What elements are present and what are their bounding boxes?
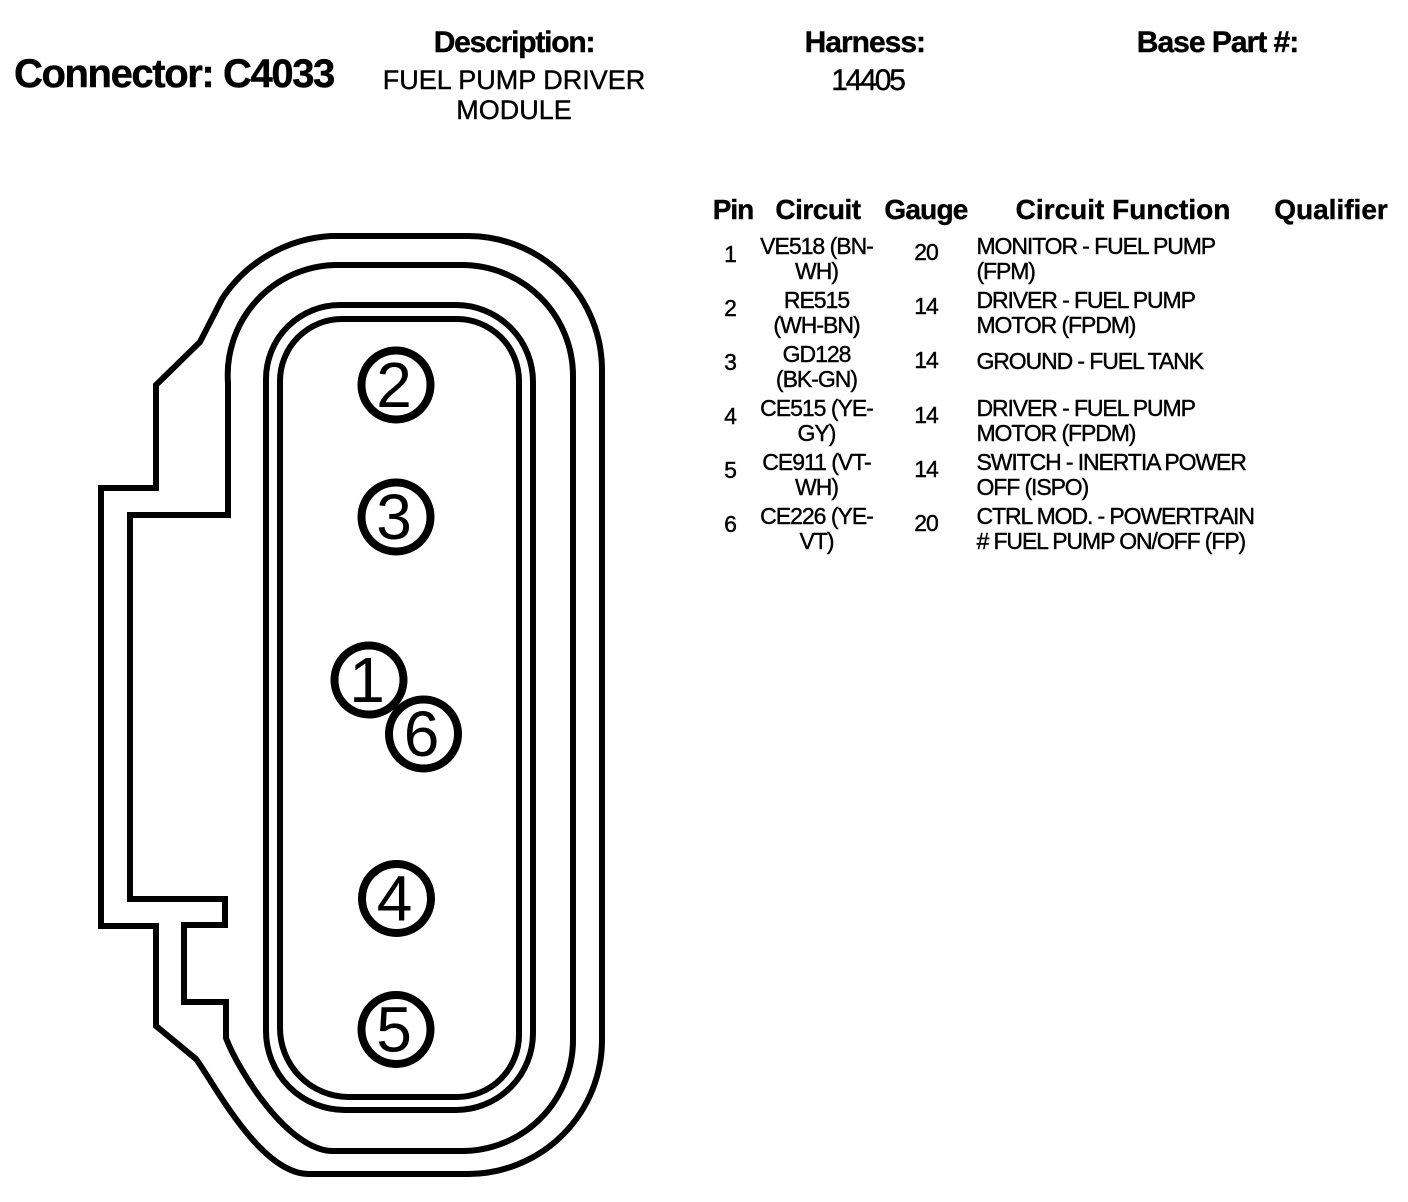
svg-text:4: 4 xyxy=(377,863,411,935)
svg-text:1: 1 xyxy=(349,644,383,716)
svg-text:3: 3 xyxy=(376,481,410,553)
svg-text:5: 5 xyxy=(376,994,410,1066)
svg-text:2: 2 xyxy=(376,349,410,421)
svg-text:6: 6 xyxy=(404,698,438,770)
